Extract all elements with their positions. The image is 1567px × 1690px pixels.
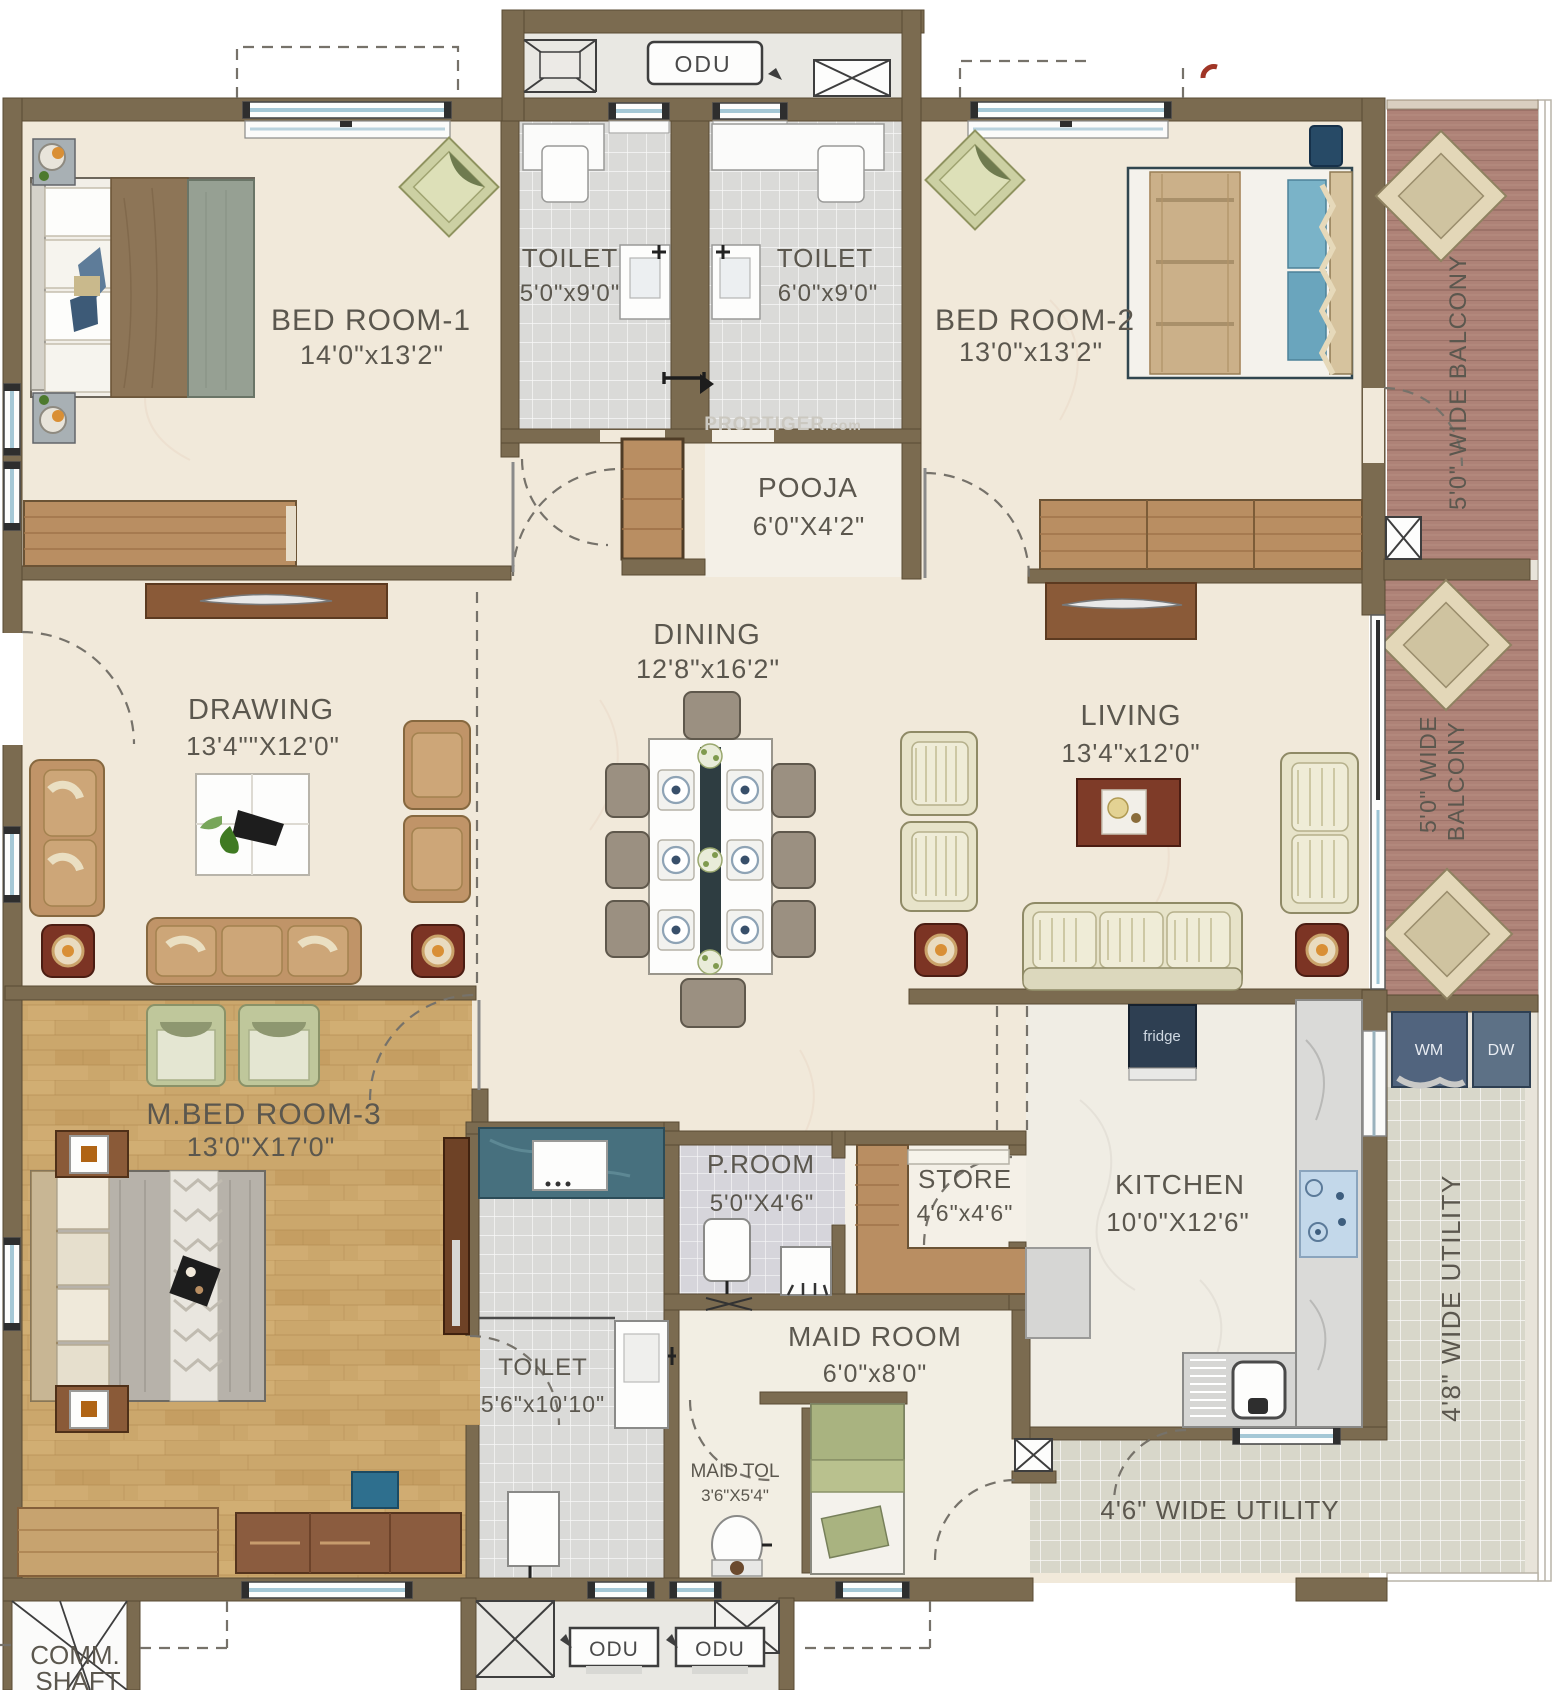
svg-text:10'0"X12'6": 10'0"X12'6": [1106, 1207, 1250, 1237]
svg-text:KITCHEN: KITCHEN: [1115, 1169, 1245, 1200]
svg-text:POOJA: POOJA: [758, 472, 858, 503]
svg-text:fridge: fridge: [1143, 1028, 1181, 1045]
svg-text:6'0"X4'2": 6'0"X4'2": [753, 511, 866, 541]
svg-text:3'6"X5'4": 3'6"X5'4": [701, 1486, 769, 1505]
svg-text:13'0"x13'2": 13'0"x13'2": [959, 337, 1103, 367]
svg-text:DW: DW: [1488, 1042, 1516, 1059]
svg-text:BALCONY: BALCONY: [1443, 721, 1469, 841]
svg-text:DINING: DINING: [653, 619, 761, 651]
svg-text:TOILET: TOILET: [522, 243, 619, 273]
svg-text:5'0" WIDE: 5'0" WIDE: [1415, 715, 1441, 833]
svg-text:MAID TOL: MAID TOL: [690, 1461, 779, 1482]
svg-text:ODU: ODU: [695, 1638, 745, 1661]
svg-text:WM: WM: [1415, 1042, 1443, 1059]
svg-text:5'0"x9'0": 5'0"x9'0": [520, 280, 621, 307]
svg-text:TOILET: TOILET: [777, 243, 874, 273]
svg-text:13'4"x12'0": 13'4"x12'0": [1061, 738, 1200, 768]
svg-text:4'6"x4'6": 4'6"x4'6": [917, 1200, 1014, 1226]
svg-text:ODU: ODU: [674, 51, 731, 77]
svg-text:STORE: STORE: [918, 1164, 1012, 1194]
svg-text:BED ROOM-1: BED ROOM-1: [271, 304, 471, 337]
svg-text:14'0"x13'2": 14'0"x13'2": [300, 340, 444, 370]
svg-text:TOILET: TOILET: [498, 1354, 588, 1381]
svg-text:DRAWING: DRAWING: [188, 694, 334, 726]
svg-text:12'8"x16'2": 12'8"x16'2": [636, 654, 780, 684]
svg-text:PROPTIGER.com: PROPTIGER.com: [704, 414, 862, 435]
svg-text:BED ROOM-2: BED ROOM-2: [935, 304, 1135, 337]
svg-text:6'0"x9'0": 6'0"x9'0": [778, 280, 879, 307]
svg-text:ODU: ODU: [589, 1638, 639, 1661]
svg-text:5'6"x10'10": 5'6"x10'10": [481, 1391, 605, 1417]
svg-text:13'0"X17'0": 13'0"X17'0": [187, 1132, 336, 1162]
svg-text:MAID ROOM: MAID ROOM: [788, 1321, 962, 1352]
svg-text:SHAFT: SHAFT: [35, 1666, 120, 1690]
svg-text:M.BED ROOM-3: M.BED ROOM-3: [146, 1098, 381, 1131]
svg-text:P.ROOM: P.ROOM: [707, 1149, 815, 1179]
svg-text:6'0"x8'0": 6'0"x8'0": [823, 1360, 927, 1388]
svg-text:LIVING: LIVING: [1080, 700, 1181, 732]
svg-text:5'0"X4'6": 5'0"X4'6": [710, 1190, 815, 1217]
svg-text:5'0" WIDE BALCONY: 5'0" WIDE BALCONY: [1445, 254, 1472, 510]
svg-text:4'6" WIDE UTILITY: 4'6" WIDE UTILITY: [1100, 1495, 1339, 1525]
svg-text:13'4""X12'0": 13'4""X12'0": [186, 731, 340, 761]
svg-text:4'8" WIDE UTILITY: 4'8" WIDE UTILITY: [1436, 1174, 1466, 1422]
